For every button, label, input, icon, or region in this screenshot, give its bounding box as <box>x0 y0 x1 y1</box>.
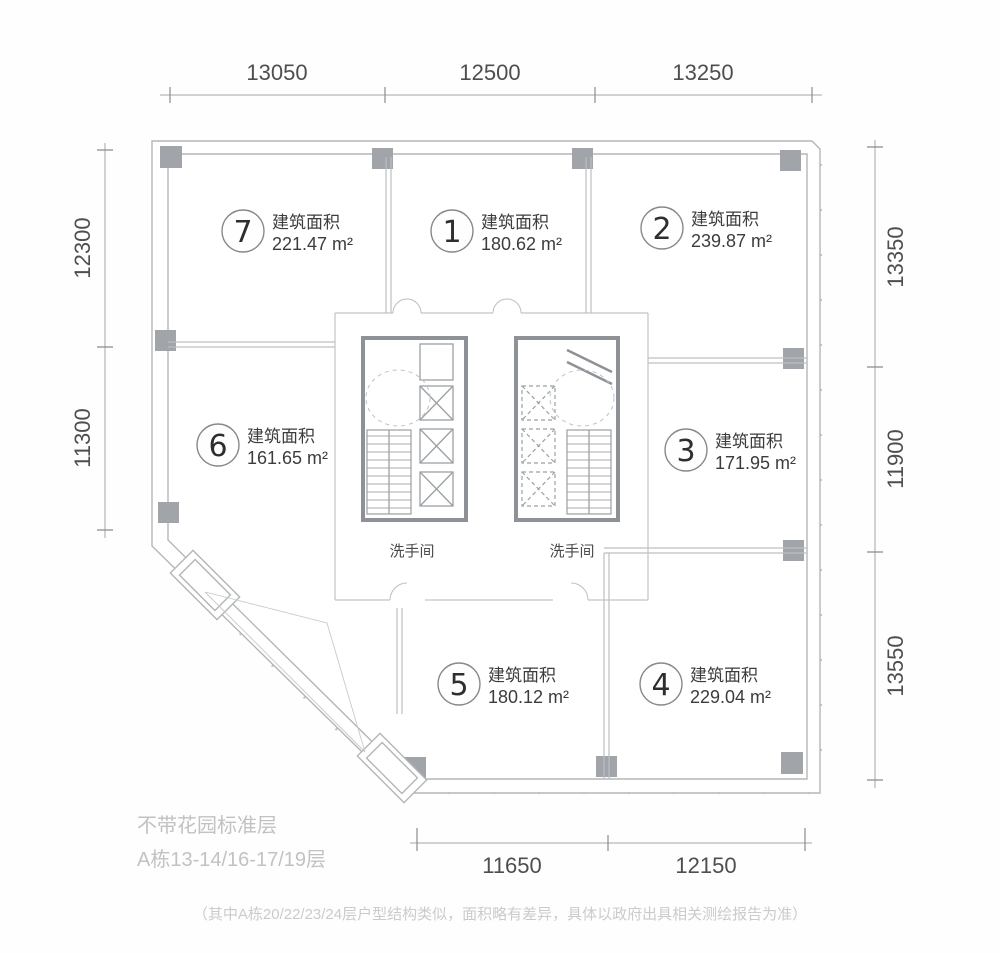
dim-right-3: 13550 <box>883 635 908 696</box>
dim-right-1: 13350 <box>883 226 908 287</box>
unit-3-number: 3 <box>676 434 695 469</box>
floorplan-page: 13050 12500 13250 11650 12150 12300 1130… <box>0 0 1000 953</box>
unit-5-number: 5 <box>449 668 468 703</box>
unit-2-area-value: 239.87 m² <box>691 231 772 251</box>
unit-7-area-label: 建筑面积 <box>272 213 340 232</box>
restroom-label-right: 洗手间 <box>549 543 594 560</box>
unit-1-number: 1 <box>442 215 461 250</box>
unit-2-number: 2 <box>652 212 671 247</box>
dim-bottom-2: 12150 <box>675 853 736 878</box>
unit-3-area-value: 171.95 m² <box>715 453 796 473</box>
caption-note: （其中A栋20/22/23/24层户型结构类似，面积略有差异，具体以政府出具相关… <box>193 905 807 923</box>
unit-5-area-label: 建筑面积 <box>488 666 556 685</box>
unit-2-area-label: 建筑面积 <box>691 210 759 229</box>
unit-7-area-value: 221.47 m² <box>272 234 353 254</box>
dimension-left: 12300 11300 <box>70 143 113 538</box>
dim-top-3: 13250 <box>672 60 733 85</box>
unit-4-area-label: 建筑面积 <box>690 666 758 685</box>
dim-bottom-1: 11650 <box>482 853 542 878</box>
unit-6-number: 6 <box>208 429 227 464</box>
dimension-top: 13050 12500 13250 <box>160 60 822 103</box>
restroom-label-left: 洗手间 <box>389 543 434 560</box>
caption-floor-range: A栋13-14/16-17/19层 <box>137 848 326 871</box>
unit-1-area-value: 180.62 m² <box>481 234 562 254</box>
unit-4-number: 4 <box>651 668 670 703</box>
dimension-right: 13350 11900 13550 <box>867 140 908 788</box>
unit-6-area-value: 161.65 m² <box>247 448 328 468</box>
floorplan-drawing: 13050 12500 13250 11650 12150 12300 1130… <box>0 0 1000 953</box>
unit-4-area-value: 229.04 m² <box>690 687 771 707</box>
dim-top-1: 13050 <box>246 60 307 85</box>
unit-6-area-label: 建筑面积 <box>247 427 315 446</box>
unit-5-area-value: 180.12 m² <box>488 687 569 707</box>
unit-3-area-label: 建筑面积 <box>715 432 783 451</box>
dim-left-2: 11300 <box>70 408 95 468</box>
unit-1-area-label: 建筑面积 <box>481 213 549 232</box>
dim-right-2: 11900 <box>883 429 908 489</box>
unit-7-number: 7 <box>233 215 252 250</box>
dimension-bottom: 11650 12150 <box>410 828 812 878</box>
dim-left-1: 12300 <box>70 217 95 278</box>
dim-top-2: 12500 <box>459 60 520 85</box>
caption-floor-type: 不带花园标准层 <box>137 814 277 837</box>
